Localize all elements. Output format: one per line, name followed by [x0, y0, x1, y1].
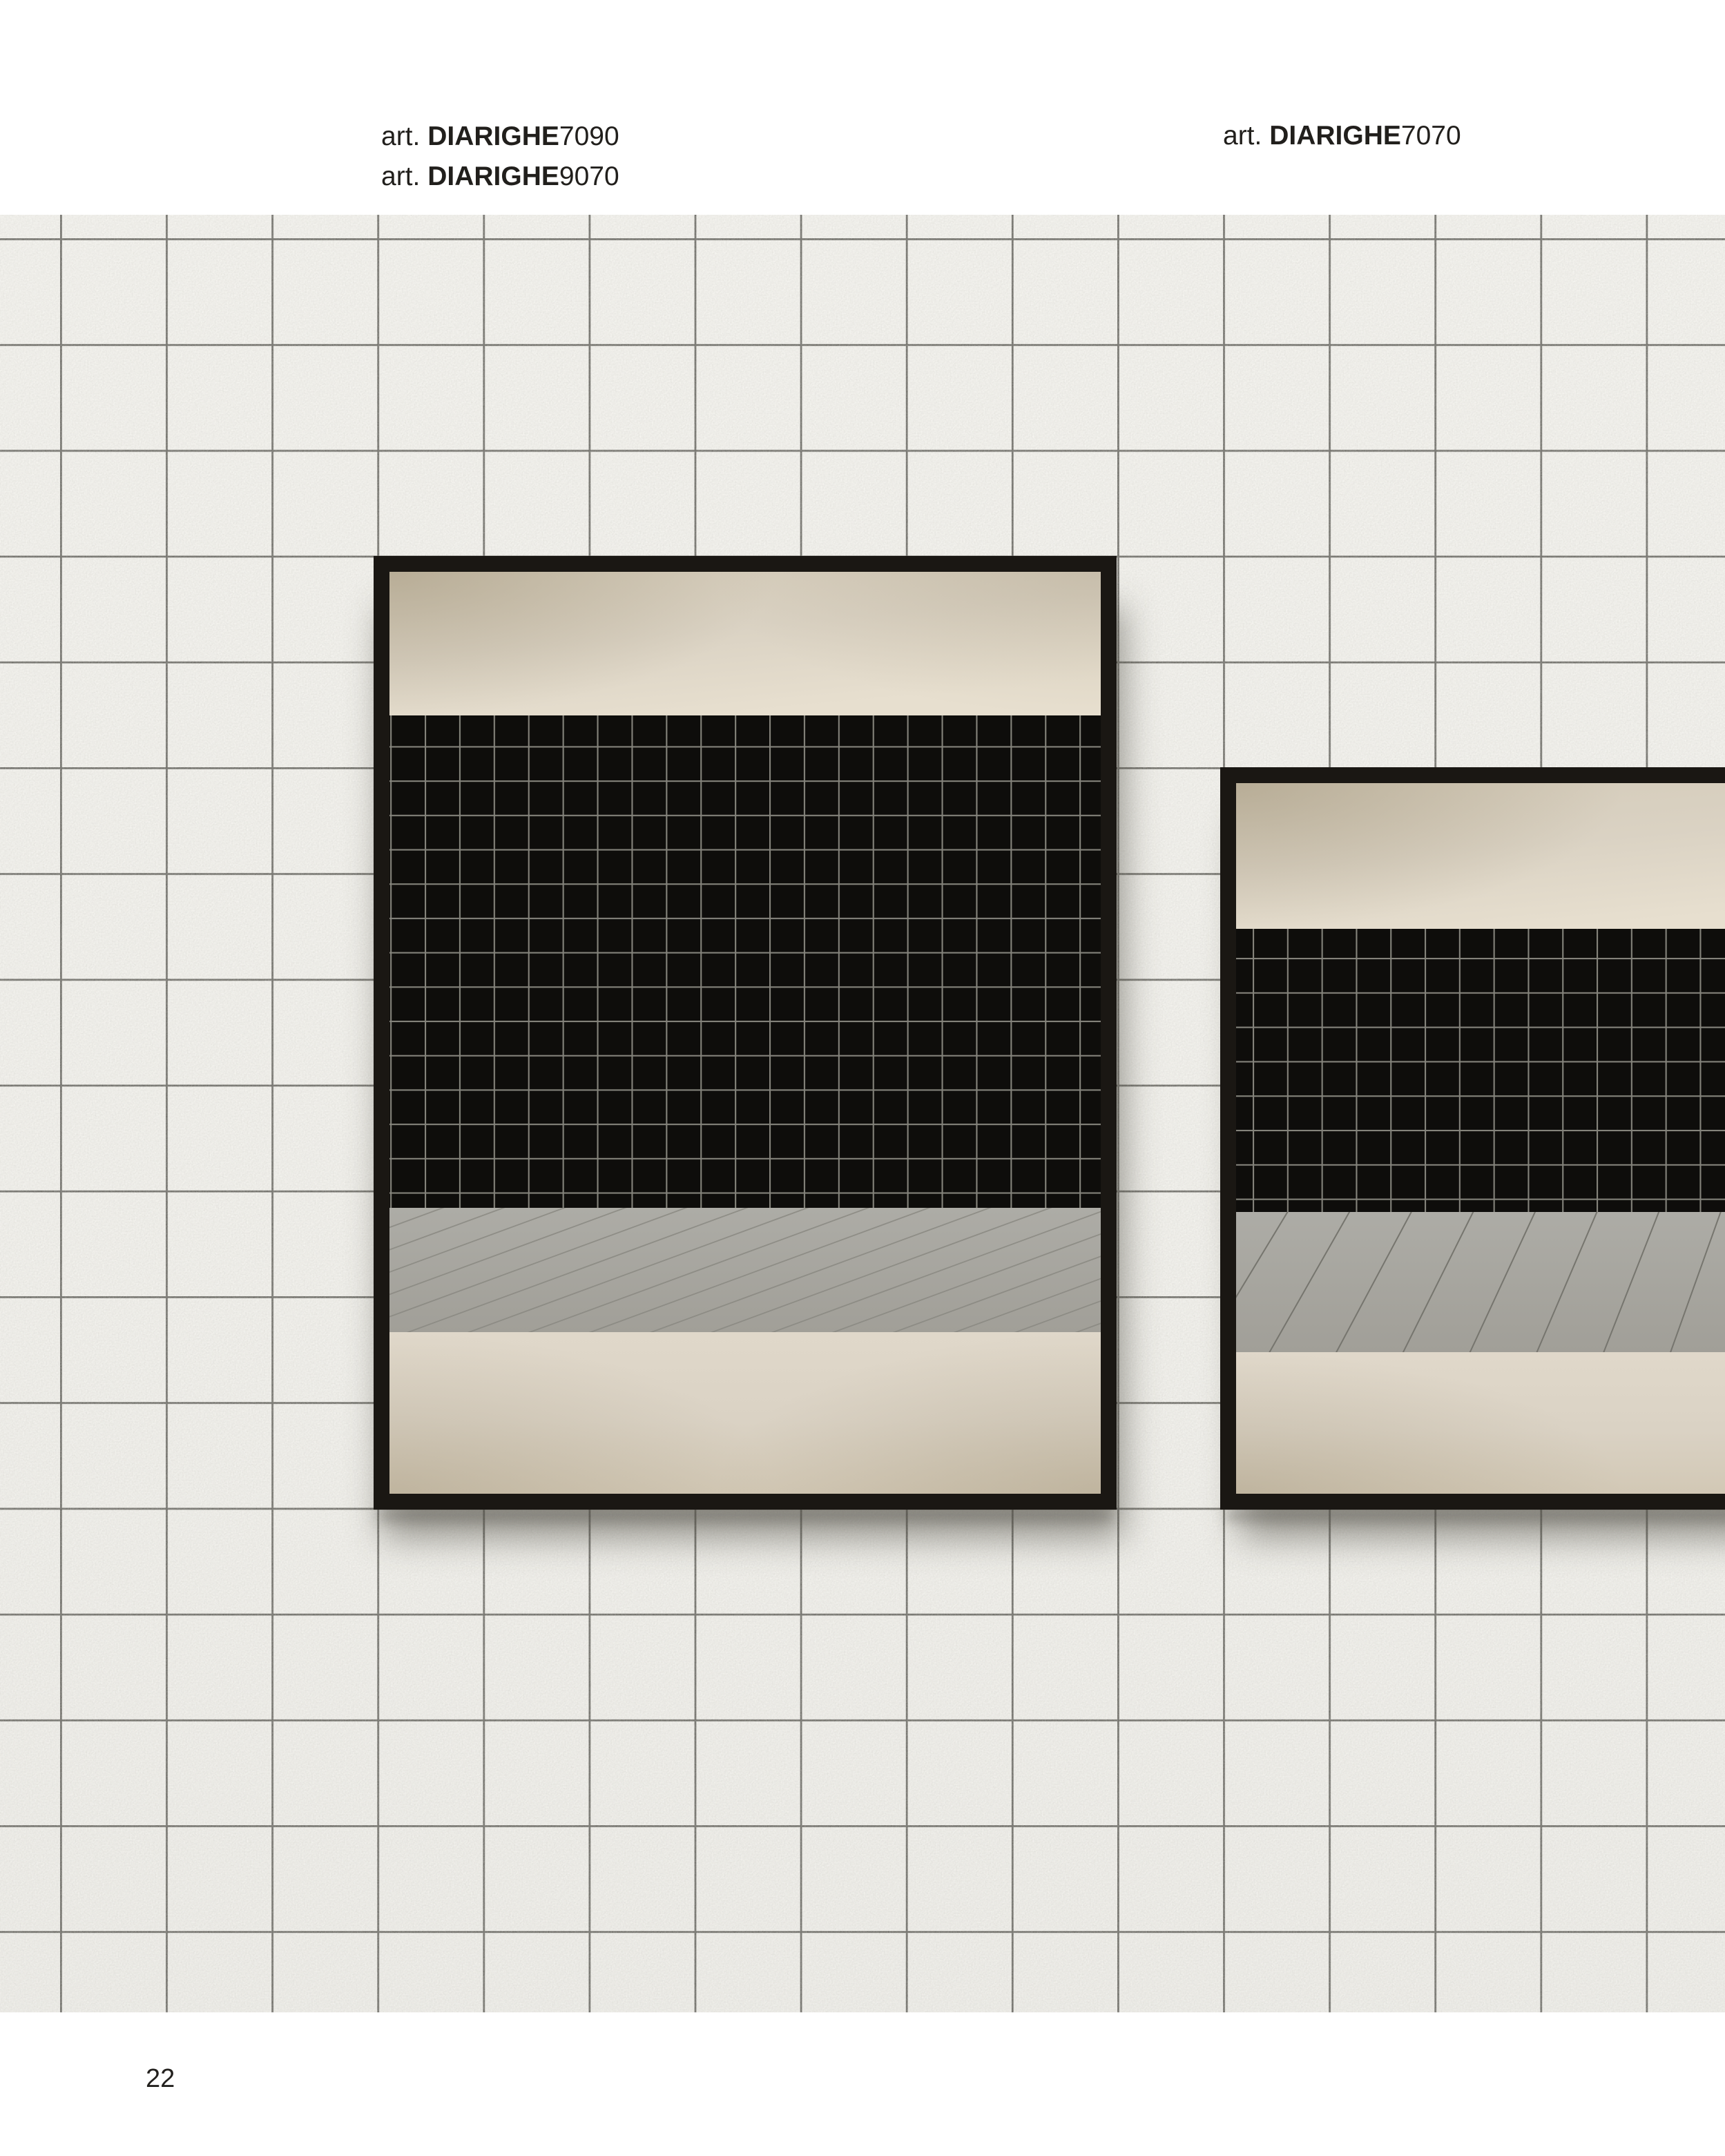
- svg-text:art. DIARIGHE9070: art. DIARIGHE9070: [381, 162, 619, 191]
- svg-text:22: 22: [146, 2064, 175, 2093]
- svg-text:art. DIARIGHE7070: art. DIARIGHE7070: [1223, 121, 1461, 151]
- svg-text:art. DIARIGHE7090: art. DIARIGHE7090: [381, 122, 619, 151]
